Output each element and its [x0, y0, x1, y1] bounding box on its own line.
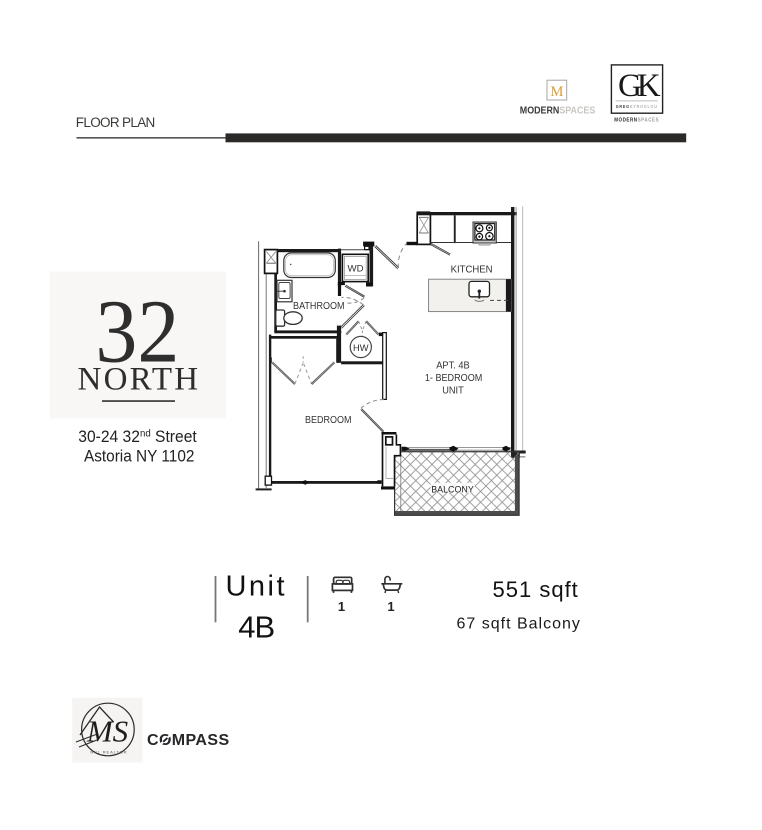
svg-text:HW: HW — [353, 343, 369, 354]
svg-text:COMPASS: COMPASS — [147, 732, 230, 749]
svg-text:FLOOR PLAN: FLOOR PLAN — [76, 115, 156, 130]
svg-text:KITCHEN: KITCHEN — [451, 264, 493, 275]
svg-text:551 sqft: 551 sqft — [493, 577, 579, 602]
svg-text:MODERNSPACES: MODERNSPACES — [614, 118, 659, 124]
svg-text:GREGKYROGLOU: GREGKYROGLOU — [616, 104, 658, 109]
svg-text:NORTH: NORTH — [78, 361, 199, 397]
svg-text:M: M — [550, 84, 563, 100]
svg-text:GK: GK — [618, 68, 661, 104]
svg-text:WD: WD — [348, 264, 364, 275]
svg-text:4B: 4B — [238, 609, 275, 644]
svg-text:MODERNSPACES: MODERNSPACES — [520, 106, 596, 117]
svg-text:MS: MS — [86, 714, 128, 749]
svg-text:67 sqft Balcony: 67 sqft Balcony — [456, 615, 580, 632]
svg-text:Astoria NY 1102: Astoria NY 1102 — [84, 446, 195, 465]
svg-text:BATHROOM: BATHROOM — [293, 301, 345, 312]
svg-text:1: 1 — [387, 599, 394, 614]
svg-text:BALCONY: BALCONY — [431, 484, 474, 495]
svg-text:30-24 32nd Street: 30-24 32nd Street — [78, 427, 197, 446]
svg-text:UNIT: UNIT — [442, 386, 464, 397]
svg-text:APT. 4B: APT. 4B — [436, 360, 470, 371]
svg-text:NYL REALTOR: NYL REALTOR — [90, 750, 127, 755]
svg-text:BEDROOM: BEDROOM — [305, 415, 352, 426]
svg-text:1: 1 — [338, 599, 345, 614]
svg-text:Unit: Unit — [226, 571, 285, 603]
svg-text:1- BEDROOM: 1- BEDROOM — [425, 373, 483, 384]
